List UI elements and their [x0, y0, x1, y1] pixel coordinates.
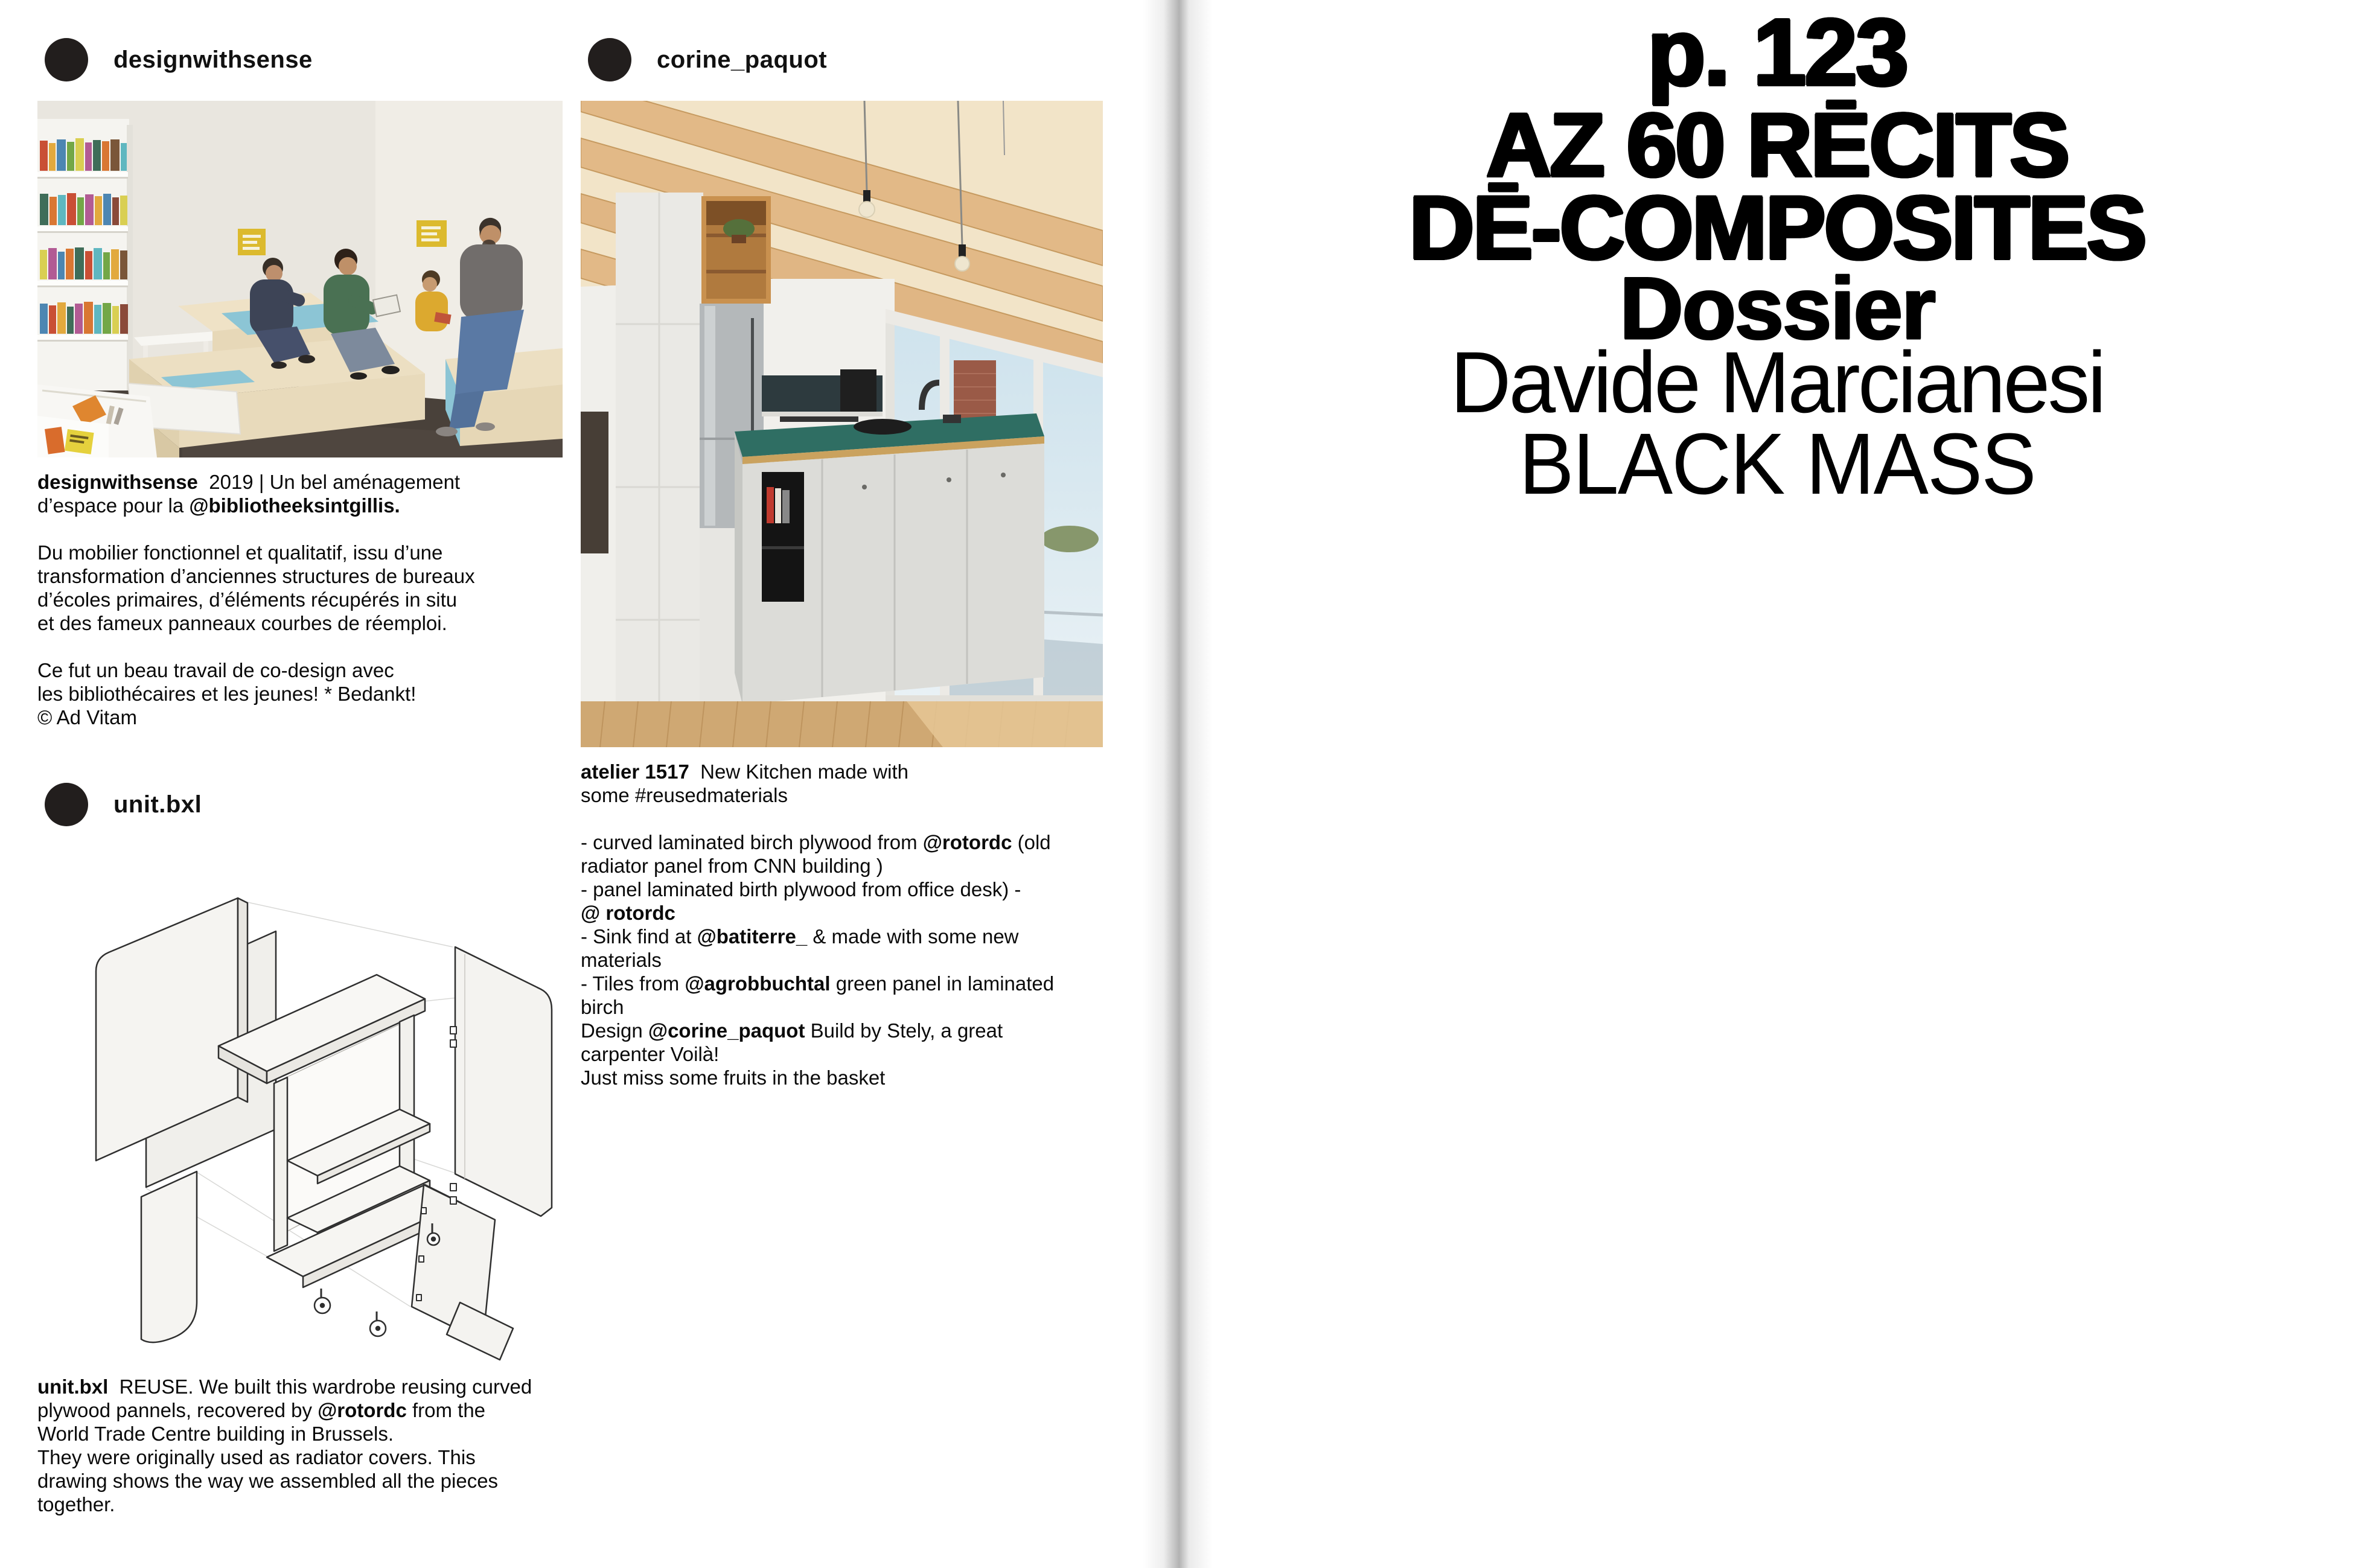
post-header-unitbxl: unit.bxl — [37, 782, 563, 827]
post-username: designwithsense — [113, 46, 313, 74]
post-username: unit.bxl — [113, 791, 202, 818]
post-photo-kitchen — [581, 101, 1103, 747]
avatar-icon — [588, 38, 631, 81]
title-black-mass: BLACK MASS — [1230, 421, 2325, 508]
library-photo-illustration — [37, 101, 563, 457]
post-caption-unitbxl: unit.bxl REUSE. We built this wardrobe r… — [37, 1375, 581, 1516]
avatar-icon — [45, 783, 88, 826]
title-page-number: p. 123 — [1201, 5, 2353, 100]
kitchen-photo-illustration — [581, 101, 1103, 747]
post-drawing-wardrobe-exploded — [37, 846, 563, 1362]
post-photo-library-interior — [37, 101, 563, 457]
post-caption-designwithsense: designwithsense 2019 | Un bel aménagemen… — [37, 470, 581, 729]
wardrobe-exploded-drawing — [37, 846, 563, 1362]
title-author: Davide Marcianesi — [1219, 339, 2336, 426]
post-username: corine_paquot — [657, 46, 827, 74]
post-header-corinepaquot: corine_paquot — [581, 37, 1103, 82]
right-page: p. 123 AZ 60 RĒCITS DĒ-COMPOSITES Dossie… — [1201, 0, 2353, 1568]
avatar-icon — [45, 38, 88, 81]
post-caption-corinepaquot: atelier 1517 New Kitchen made withsome #… — [581, 760, 1124, 1089]
post-header-designwithsense: designwithsense — [37, 37, 563, 82]
